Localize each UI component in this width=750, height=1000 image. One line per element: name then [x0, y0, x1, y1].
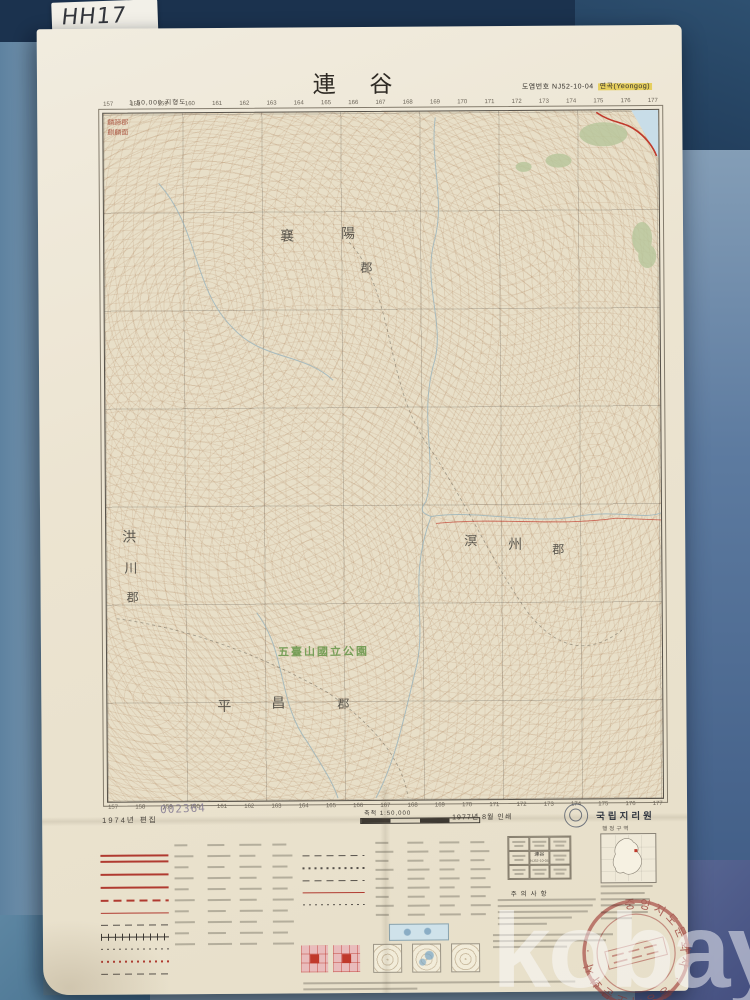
sheet-name-highlighted: 연곡(Yeongog) [598, 83, 652, 90]
faux-text-line [272, 866, 287, 868]
grid-number: 174 [566, 98, 576, 104]
faux-text-line [272, 910, 288, 912]
grid-number: 171 [489, 802, 499, 808]
faux-text-line [272, 876, 293, 878]
faux-text-line [239, 855, 255, 857]
faux-text-line [240, 877, 257, 879]
grid-number: 163 [267, 101, 277, 107]
korea-index-map [600, 833, 656, 883]
paper-crease [380, 787, 391, 993]
grid-number: 166 [348, 100, 358, 106]
legend-road-symbol [101, 873, 169, 875]
faux-text-line [207, 844, 225, 846]
water-sample-panel [412, 943, 441, 972]
district-label: 溟 [464, 534, 477, 547]
grid-number: 162 [239, 101, 249, 107]
adjacent-sheet-cell [529, 865, 550, 879]
grid-number: 160 [185, 101, 195, 107]
faux-text-line [207, 866, 225, 868]
district-label: 郡 [552, 544, 564, 556]
faux-text-line [471, 850, 490, 852]
legend-boundary-line [303, 891, 365, 892]
adjacent-sheet-cell: 連谷NJ52-10-04 [529, 851, 550, 865]
faux-text-line [207, 877, 231, 879]
faux-text-line [175, 877, 194, 879]
faux-text-line [439, 869, 454, 871]
legend-road-symbol [101, 912, 169, 913]
grid-number: 172 [517, 802, 527, 808]
faux-text-line [240, 899, 257, 901]
faux-text-line [175, 943, 195, 945]
district-label: 平 [217, 701, 231, 715]
faux-text-line [553, 841, 566, 843]
grid-number: 157 [103, 102, 113, 108]
rivers [158, 116, 663, 799]
faux-text-line [239, 844, 261, 846]
faux-text-line [175, 899, 195, 901]
faux-text-line [207, 855, 230, 857]
faux-text-line [239, 866, 261, 868]
district-label: 洪 [122, 532, 136, 546]
faux-text-line [407, 869, 429, 871]
district-label: 郡 [127, 592, 139, 604]
korea-outline [601, 834, 655, 882]
grid-number: 173 [539, 99, 549, 105]
adjacent-sheet-cell [508, 865, 529, 879]
faux-text-line [439, 877, 460, 879]
faux-text-line [471, 877, 485, 879]
grid-number: 158 [135, 805, 145, 811]
faux-text-line [240, 888, 262, 890]
urban-block-sample [333, 945, 360, 972]
faux-text-line [407, 860, 424, 862]
grid-number: 157 [108, 805, 118, 811]
district-label: 麟蹄郡 [107, 120, 128, 127]
faux-text-line [535, 873, 544, 875]
faux-text-line [174, 844, 187, 846]
faux-text-line [439, 886, 455, 888]
grid-number: 163 [271, 804, 281, 810]
faux-text-line [408, 914, 425, 916]
sheet-number-label: 도엽번호 NJ52-10-04 [522, 83, 594, 91]
district-label: 昌 [271, 698, 285, 712]
sheet-location-marker [634, 849, 637, 852]
map-sheet: 連 谷 1:50,000 지형도 도엽번호 NJ52-10-04연곡(Yeong… [37, 25, 689, 995]
tab-text: HH17 [50, 0, 159, 31]
grid-number: 177 [648, 98, 658, 104]
faux-text-line [407, 851, 429, 853]
faux-text-line [272, 899, 293, 901]
adjacent-sheet-cell [529, 837, 550, 851]
faux-text-line [407, 842, 423, 844]
index-map-caption: 행정구역 [602, 824, 630, 832]
district-label: 襄 [280, 230, 294, 244]
faux-text-line [514, 859, 523, 861]
faux-text-line [514, 845, 523, 847]
faux-text-line [208, 943, 232, 945]
legend-boundary-line [303, 903, 365, 905]
faux-text-line [273, 942, 295, 944]
district-label: 麒麟面 [107, 130, 128, 137]
faux-text-line [512, 869, 525, 871]
faux-text-line [272, 920, 293, 922]
faux-text-line [303, 988, 417, 991]
faux-text-line [207, 932, 226, 934]
adjacent-sheet-cell [508, 837, 529, 851]
faux-text-line [272, 932, 288, 934]
grid-number: 176 [625, 801, 635, 807]
legend-road-symbol [101, 899, 169, 901]
paper-corner-shadow [43, 918, 174, 995]
contour-sample-panel [451, 943, 480, 972]
grid-number: 172 [512, 99, 522, 105]
faux-text-line [471, 895, 486, 897]
faux-text-line [207, 921, 231, 923]
faux-text-line [471, 868, 490, 870]
faux-text-line [555, 845, 564, 847]
county-boundaries [114, 240, 623, 800]
faux-text-line [439, 850, 454, 852]
grid-number: 175 [598, 801, 608, 807]
adjacent-sheet-cell [550, 865, 571, 879]
faux-text-line [514, 873, 523, 875]
faux-text-line [439, 842, 459, 844]
district-label: 郡 [360, 262, 372, 274]
grid-number: 159 [158, 101, 168, 107]
legend-symbols-c [375, 841, 494, 922]
grid-number: 166 [353, 803, 363, 809]
faux-text-line [554, 869, 567, 871]
faux-text-line [272, 844, 287, 846]
faux-text-line [174, 855, 193, 857]
grid-number: 165 [321, 100, 331, 106]
faux-text-line [556, 873, 565, 875]
adjacent-sheet-cell [550, 837, 571, 851]
faux-text-line [471, 913, 486, 915]
map-artwork [103, 110, 663, 802]
grid-number: 170 [462, 802, 472, 808]
legend-captions-a [174, 843, 297, 996]
grid-number: 167 [375, 100, 385, 106]
grid-number: 162 [244, 804, 254, 810]
faux-text-line [175, 910, 189, 912]
forest-patches [515, 122, 656, 269]
faux-text-line [439, 859, 459, 861]
faux-text-line [407, 887, 429, 889]
grid-number: 173 [544, 802, 554, 808]
grid-number: 169 [430, 99, 440, 105]
faux-text-line [471, 841, 485, 843]
faux-text-line [439, 904, 455, 906]
faux-text-line [439, 896, 460, 898]
faux-text-line [471, 886, 491, 888]
map-frame: 1571581591601611621631641651661671681691… [102, 109, 664, 803]
faux-text-line [439, 913, 460, 915]
faux-text-line [207, 910, 225, 912]
adjacent-sheet-table: 連谷NJ52-10-04 [507, 836, 571, 880]
lake-sample-panel [389, 923, 449, 940]
grid-number: 170 [457, 99, 467, 105]
legend-road-symbol [101, 886, 169, 888]
faux-text-line [533, 869, 546, 871]
faux-text-line [272, 888, 287, 890]
faux-text-line [601, 885, 653, 887]
grid-number: 169 [435, 802, 445, 808]
serial-number-stamp: 002364 [160, 801, 206, 816]
faux-text-line [240, 932, 263, 934]
grid-number: 175 [593, 98, 603, 104]
adjacent-sheet-cell [508, 851, 529, 865]
faux-text-line [407, 896, 424, 898]
grid-number: 158 [130, 102, 140, 108]
district-label: 州 [508, 539, 522, 553]
legend-road-symbol [100, 854, 168, 862]
faux-text-line [240, 921, 257, 923]
faux-text-line [407, 878, 424, 880]
legend-urban-blocks [301, 945, 371, 977]
legend-boundary-samples [302, 844, 365, 916]
faux-text-line [533, 841, 546, 843]
grid-number: 164 [294, 100, 304, 106]
faux-text-line [554, 855, 567, 857]
grid-number: 164 [299, 803, 309, 809]
legend-boundary-line [303, 879, 365, 880]
faux-text-line [555, 859, 564, 861]
faux-text-line [175, 888, 189, 890]
faux-text-line [240, 910, 263, 912]
district-label: 川 [124, 562, 137, 575]
site-watermark: kobay [492, 898, 750, 1000]
national-park-label: 五臺山國立公園 [278, 643, 369, 660]
grid-number: 168 [403, 100, 413, 106]
faux-text-line [408, 905, 430, 907]
faux-text-line [175, 921, 195, 923]
legend-boundary-line [302, 867, 364, 869]
faux-text-line [512, 855, 525, 857]
grid-number: 176 [621, 98, 631, 104]
faux-text-line [471, 904, 491, 906]
district-label: 陽 [341, 228, 355, 242]
adjacent-sheet-cell [550, 851, 571, 865]
grid-number: 161 [212, 101, 222, 107]
grid-number: 177 [653, 801, 663, 807]
faux-text-line [240, 943, 257, 945]
faux-text-line [175, 932, 189, 934]
grid-number: 161 [217, 804, 227, 810]
faux-text-line [207, 899, 231, 901]
sheet-number-line: 도엽번호 NJ52-10-04연곡(Yeongog) [522, 81, 652, 92]
adjacent-sheet-number: NJ52-10-04 [530, 859, 548, 863]
grid-number: 165 [326, 803, 336, 809]
adjacent-sheet-name: 連谷 [534, 852, 544, 857]
faux-text-line [535, 845, 544, 847]
faux-text-line [272, 854, 293, 856]
faux-text-line [174, 866, 188, 868]
grid-number: 171 [484, 99, 494, 105]
roads [433, 112, 661, 524]
faux-text-line [471, 859, 485, 861]
urban-block-sample [301, 945, 328, 972]
photo-scene: HH17 連 谷 1:50,000 지형도 도엽번호 NJ52-10-04연곡(… [0, 0, 750, 1000]
faux-text-line [512, 841, 525, 843]
district-label: 郡 [337, 698, 349, 710]
faux-text-line [207, 888, 225, 890]
legend-boundary-line [302, 855, 364, 856]
